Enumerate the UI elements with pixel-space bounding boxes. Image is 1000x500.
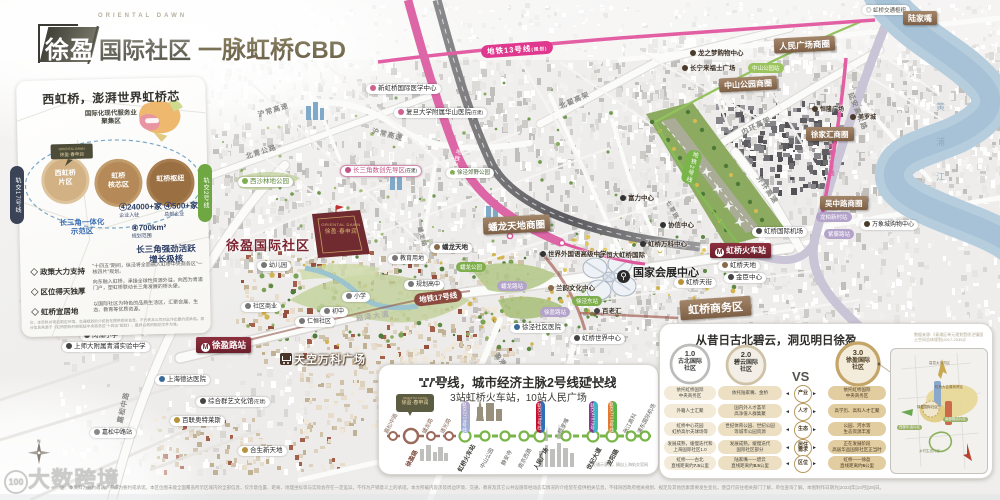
svg-text:N: N <box>37 439 40 444</box>
svg-text:ORIENTAL DAWN: ORIENTAL DAWN <box>59 147 86 152</box>
